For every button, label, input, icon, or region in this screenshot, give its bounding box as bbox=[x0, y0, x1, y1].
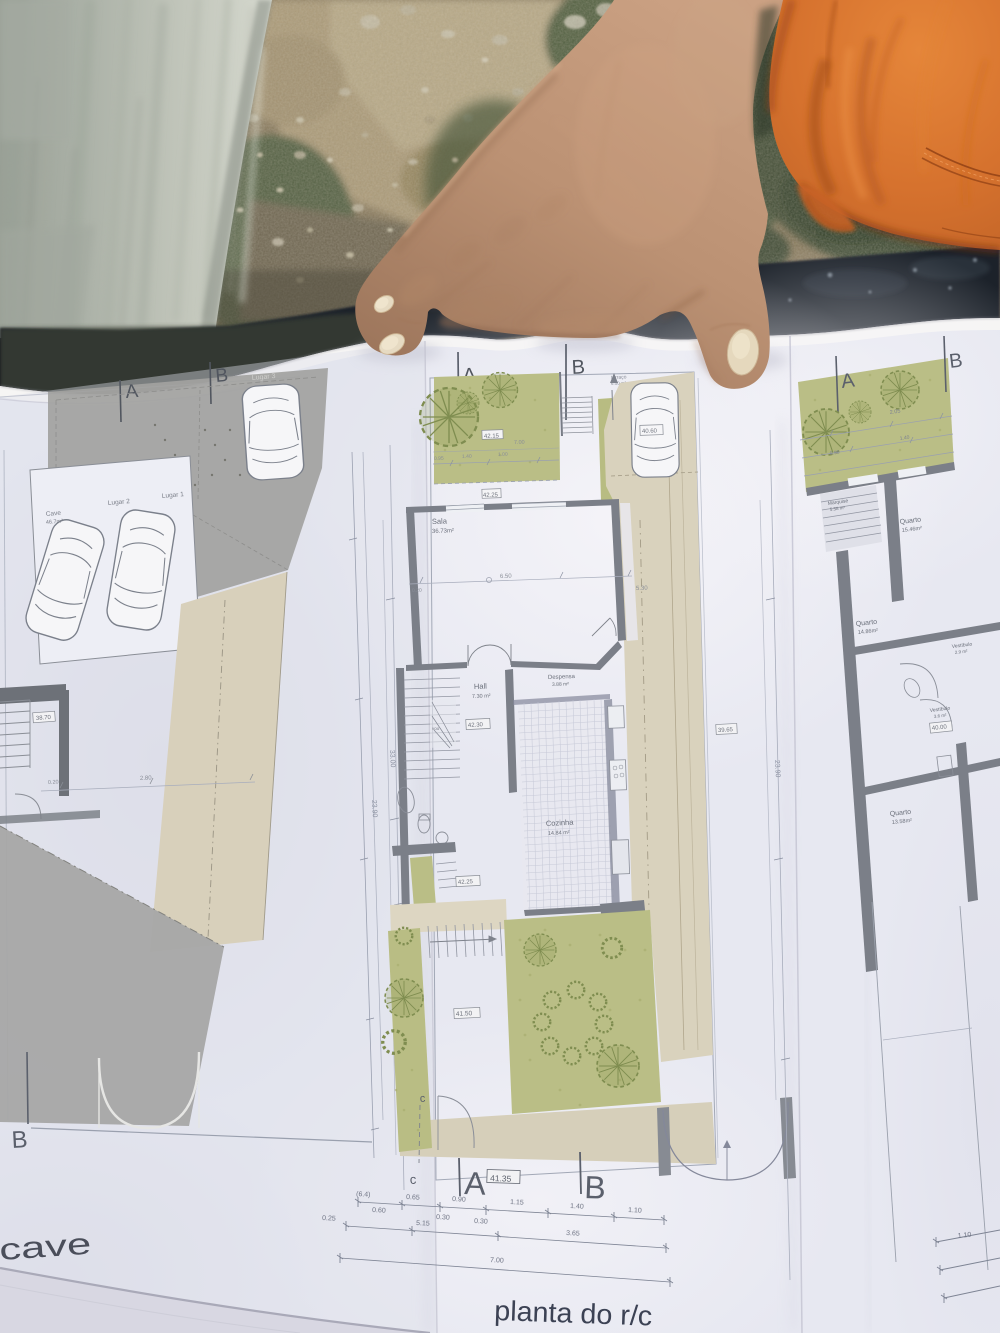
svg-text:0.20: 0.20 bbox=[48, 779, 59, 786]
svg-text:Sala: Sala bbox=[432, 516, 448, 526]
svg-text:2.80: 2.80 bbox=[140, 775, 153, 782]
svg-text:39.65: 39.65 bbox=[718, 727, 734, 734]
svg-text:c: c bbox=[409, 1172, 417, 1187]
svg-text:B: B bbox=[584, 1169, 607, 1206]
svg-text:6.50: 6.50 bbox=[500, 574, 513, 580]
svg-text:cave: cave bbox=[0, 1228, 92, 1267]
svg-text:B: B bbox=[571, 356, 585, 379]
svg-text:B: B bbox=[11, 1126, 28, 1154]
svg-text:42.30: 42.30 bbox=[468, 722, 484, 729]
svg-text:41.50: 41.50 bbox=[456, 1010, 473, 1018]
svg-text:Despensa: Despensa bbox=[548, 674, 576, 681]
svg-text:1.40: 1.40 bbox=[462, 454, 472, 460]
svg-text:Cave: Cave bbox=[46, 510, 62, 518]
svg-text:0.95: 0.95 bbox=[434, 456, 444, 462]
svg-text:0.65: 0.65 bbox=[406, 1194, 420, 1202]
svg-text:(6.4): (6.4) bbox=[356, 1191, 371, 1199]
svg-text:1.00: 1.00 bbox=[498, 452, 508, 458]
svg-text:B: B bbox=[948, 350, 964, 373]
svg-text:3.88 m²: 3.88 m² bbox=[552, 681, 569, 688]
svg-text:0.30: 0.30 bbox=[474, 1218, 488, 1226]
svg-text:42.25: 42.25 bbox=[483, 492, 499, 499]
svg-text:1.15: 1.15 bbox=[510, 1199, 524, 1207]
svg-text:1.40: 1.40 bbox=[570, 1203, 584, 1211]
svg-text:23.90: 23.90 bbox=[773, 760, 781, 778]
svg-text:7.30 m²: 7.30 m² bbox=[472, 693, 491, 700]
svg-text:planta do r/c: planta do r/c bbox=[494, 1295, 653, 1331]
svg-text:voo: voo bbox=[432, 726, 440, 731]
svg-text:Hall: Hall bbox=[474, 682, 488, 691]
svg-text:5.30: 5.30 bbox=[636, 586, 649, 592]
svg-text:0.90: 0.90 bbox=[452, 1196, 466, 1204]
svg-text:A: A bbox=[125, 381, 140, 403]
svg-text:A: A bbox=[464, 1165, 487, 1202]
svg-text:0.20: 0.20 bbox=[412, 588, 422, 594]
svg-text:1.10: 1.10 bbox=[628, 1207, 642, 1215]
svg-text:7.00: 7.00 bbox=[514, 440, 525, 446]
svg-text:33.00: 33.00 bbox=[388, 750, 396, 768]
svg-text:5.15: 5.15 bbox=[416, 1220, 430, 1228]
svg-text:23.90: 23.90 bbox=[370, 800, 378, 818]
svg-text:0.60: 0.60 bbox=[372, 1207, 386, 1215]
svg-text:42.25: 42.25 bbox=[458, 879, 474, 886]
svg-text:41.35: 41.35 bbox=[490, 1173, 512, 1184]
svg-text:0.30: 0.30 bbox=[436, 1214, 450, 1222]
svg-text:14.84 m²: 14.84 m² bbox=[548, 830, 570, 837]
svg-text:B: B bbox=[215, 365, 229, 387]
svg-text:Cozinha: Cozinha bbox=[546, 818, 575, 828]
svg-text:7.00: 7.00 bbox=[490, 1257, 504, 1265]
svg-text:3.65: 3.65 bbox=[566, 1230, 580, 1238]
svg-text:0.25: 0.25 bbox=[322, 1215, 336, 1223]
svg-text:40.60: 40.60 bbox=[642, 428, 658, 435]
svg-text:42.15: 42.15 bbox=[484, 433, 500, 440]
svg-text:36.73m²: 36.73m² bbox=[432, 528, 454, 535]
svg-text:38.70: 38.70 bbox=[36, 715, 52, 722]
